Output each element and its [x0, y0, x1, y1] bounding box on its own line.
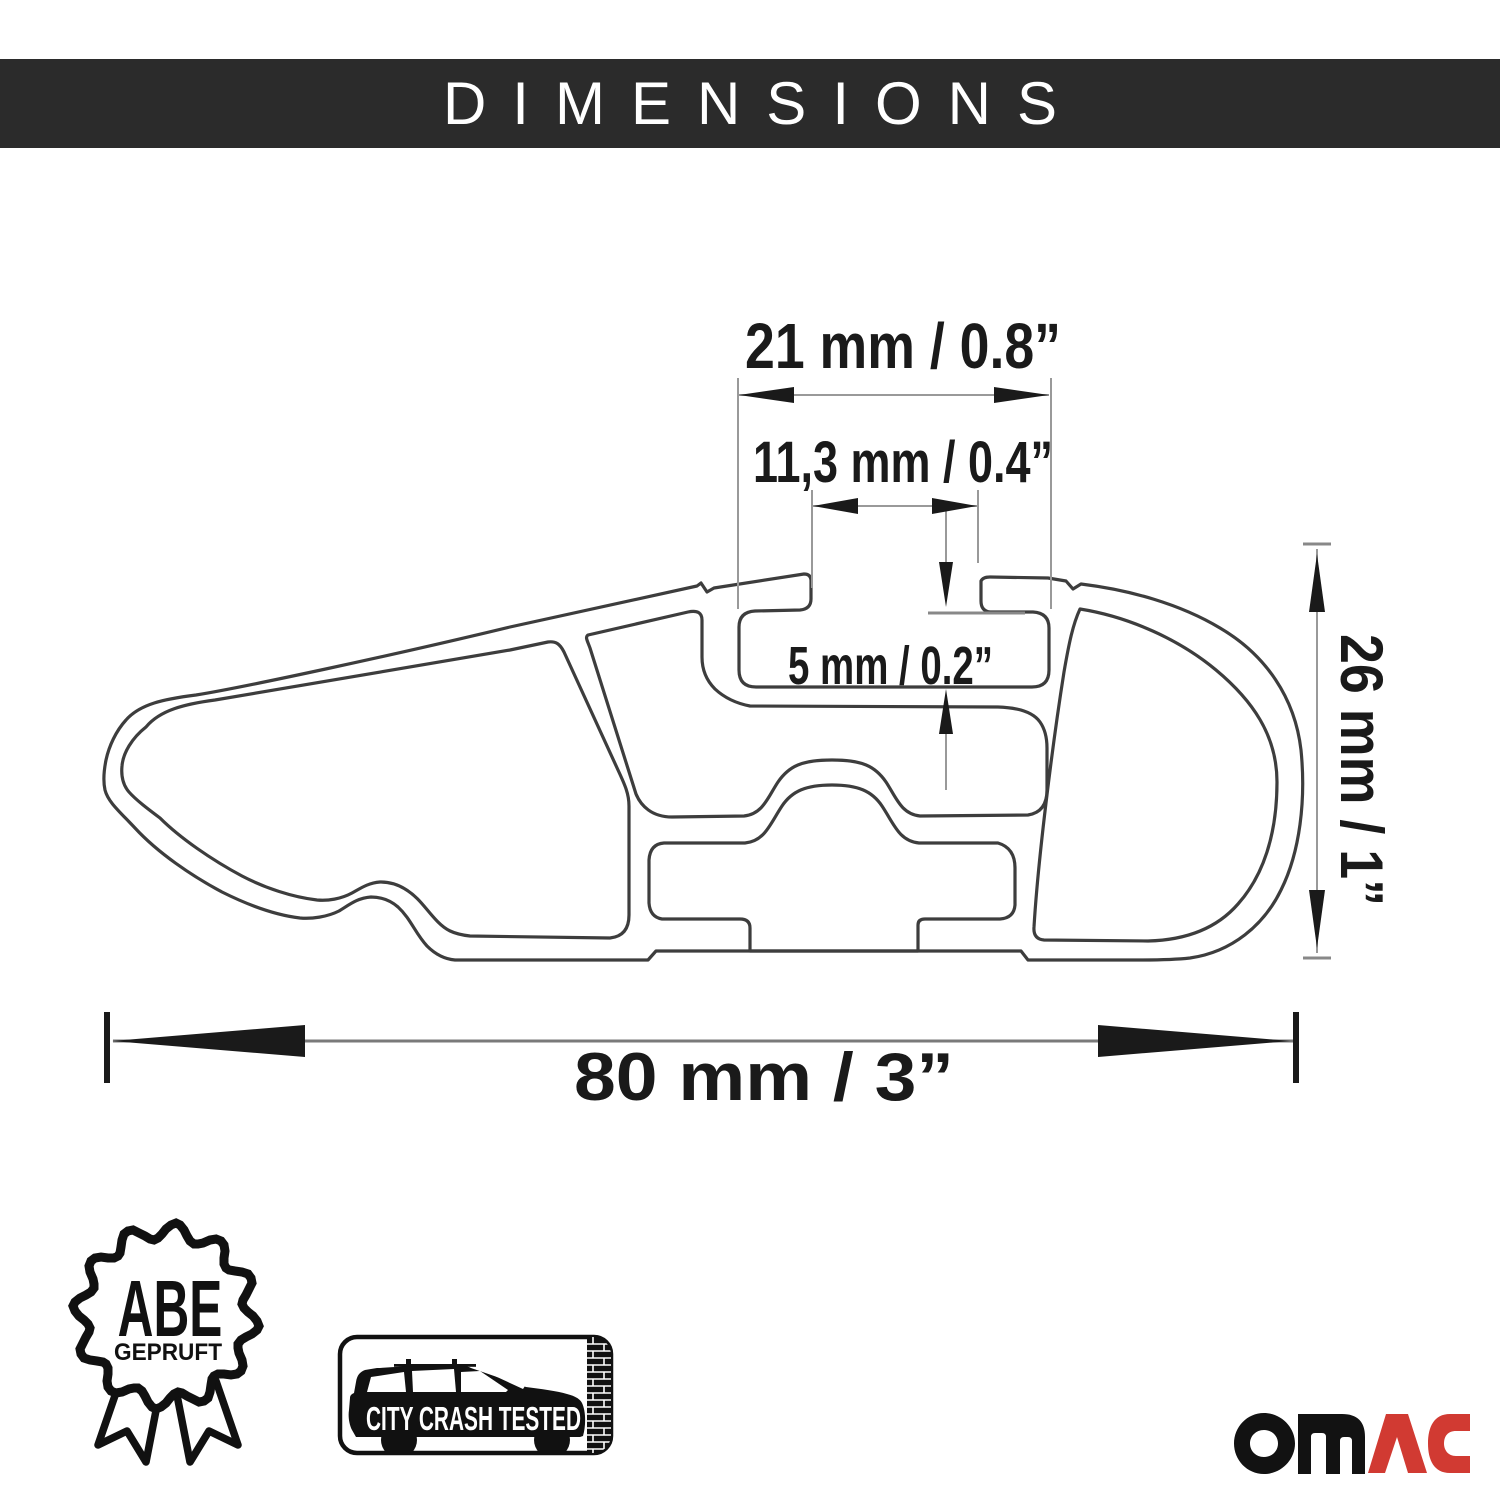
svg-text:5 mm / 0.2”: 5 mm / 0.2” [788, 636, 993, 696]
svg-text:CITY CRASH TESTED: CITY CRASH TESTED [366, 1400, 581, 1437]
svg-text:GEPRUFT: GEPRUFT [114, 1339, 222, 1366]
svg-text:26 mm / 1”: 26 mm / 1” [1328, 634, 1395, 906]
svg-text:80 mm / 3”: 80 mm / 3” [574, 1039, 954, 1115]
svg-text:21 mm / 0.8”: 21 mm / 0.8” [745, 310, 1061, 382]
svg-text:11,3 mm / 0.4”: 11,3 mm / 0.4” [753, 430, 1053, 495]
